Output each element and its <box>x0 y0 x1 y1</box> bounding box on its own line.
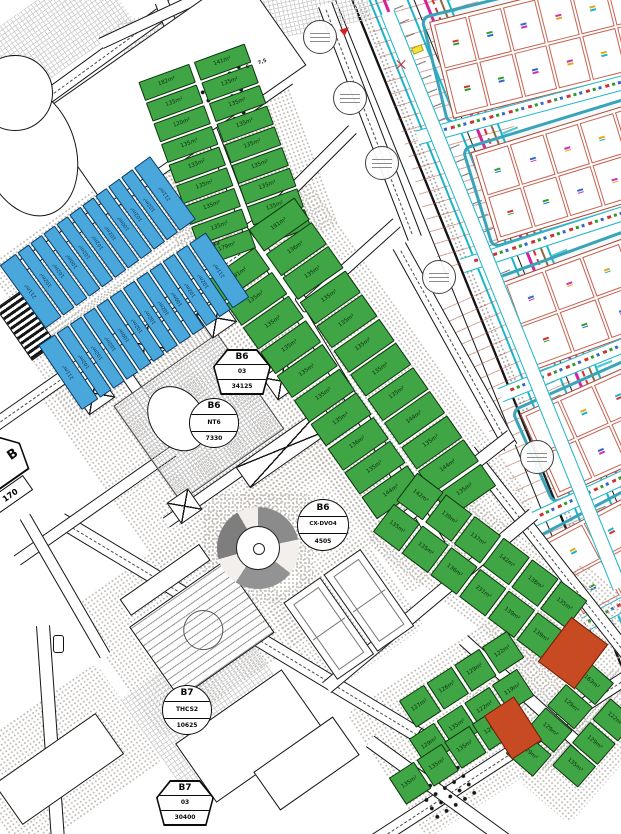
badge-b6-cxdvo4[interactable]: B6 CX-DVO4 4505 <box>297 499 349 551</box>
badge-b6-03[interactable]: B6 03 34125 <box>213 349 271 395</box>
field-center-circle <box>175 602 231 658</box>
badge-line: THCS2 <box>163 701 211 717</box>
lot-annotation-mark <box>578 191 584 194</box>
lot-annotation-mark <box>487 34 493 37</box>
badge-line: 34125 <box>215 379 270 394</box>
lot-annotation-mark <box>600 138 606 141</box>
lot-annotation-mark <box>453 42 459 45</box>
badge-b6-nt6[interactable]: B6 NT6 7330 <box>189 398 239 448</box>
badge-line: CX-DVO4 <box>298 516 348 533</box>
survey-marker[interactable] <box>303 20 337 54</box>
lot-annotation-mark <box>590 8 596 11</box>
lot-annotation-mark <box>495 170 501 173</box>
gabled-building <box>167 488 203 524</box>
lot-annotation-mark <box>533 71 539 74</box>
lot-annotation-mark <box>508 212 514 215</box>
traffic-island <box>53 635 64 653</box>
badge-line: NT6 <box>190 414 238 430</box>
lot-annotation-mark <box>464 88 470 91</box>
plaza-center <box>253 543 265 555</box>
lot-annotation-mark <box>565 149 571 152</box>
lot-annotation-mark <box>498 79 504 82</box>
lot-annotation-mark <box>556 17 562 20</box>
badge-line: 30400 <box>158 810 213 825</box>
lot-annotation-mark <box>521 25 527 28</box>
lot-annotation-mark <box>543 201 549 204</box>
lot-annotation-mark <box>530 159 536 162</box>
lot-annotation-mark <box>544 339 550 343</box>
survey-marker[interactable] <box>333 81 367 115</box>
badge-line: 03 <box>158 795 213 810</box>
circular-plaza <box>217 507 299 589</box>
badge-b7-thcs2[interactable]: B7 THCS2 10625 <box>162 685 212 735</box>
survey-marker[interactable] <box>365 146 399 180</box>
lot-annotation-mark <box>605 270 611 274</box>
zoning-plan-map: B6 03 34125 B6 NT6 7330 B6 CX-DVO4 4505 … <box>0 0 621 834</box>
lot-annotation-mark <box>567 284 573 288</box>
survey-marker[interactable] <box>520 440 554 474</box>
lot-annotation-mark <box>582 325 588 329</box>
lot-annotation-mark <box>567 62 573 65</box>
lot-annotation-mark <box>613 180 619 183</box>
lot-annotation-mark <box>601 54 607 57</box>
badge-line: 03 <box>215 364 270 379</box>
badge-b7-03[interactable]: B7 03 30400 <box>156 780 214 826</box>
lot-annotation-mark <box>529 298 535 302</box>
survey-marker[interactable] <box>422 260 456 294</box>
red-cross-symbol <box>395 58 407 70</box>
